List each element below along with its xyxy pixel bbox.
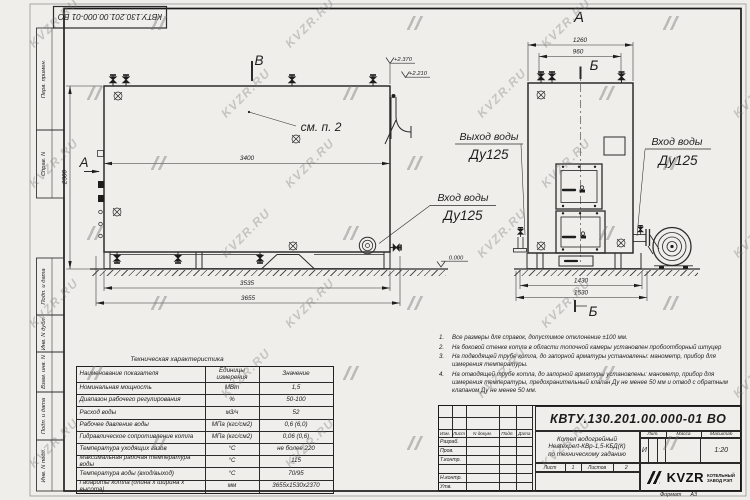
furnace-door-lower [556,211,605,253]
col-podp: Подп. [500,430,517,438]
sheets-label: Листов [582,464,614,471]
watermark-logo-icon [150,16,170,30]
margin-box-perv-primen: Перв. примен. [37,28,65,130]
notes-list: 1.Все размеры для справок, допустимое от… [437,334,738,397]
svg-text:Выход воды: Выход воды [459,131,518,143]
company-name: KVZR [667,470,704,485]
elevation-mark-zero: 0.000 [437,256,468,268]
note-number: 2. [437,344,452,352]
mass-value [666,439,701,462]
inlet-fitting-front [633,226,659,254]
dimension-front-width: 1260 [528,37,633,81]
svg-text:Взам. инв. N: Взам. инв. N [41,354,47,389]
scale-value: 1:20 [701,439,742,462]
drawing-sheet: КВТУ.130.201.00.000-01 ВО Перв. примен. … [0,0,750,500]
watermark-logo-icon [86,226,106,240]
watermark-text: KVZR.RU [26,0,81,51]
signature-rows: Разраб. Пров. Т.контр. Н.контр. Утв. [439,438,535,492]
note-number: 4. [437,371,452,395]
section-mark-b-bottom: Б [575,300,598,319]
margin-column: Перв. примен. Справ. N Подп. и дата Инв.… [37,28,65,491]
valve-icon [289,75,295,86]
product-line3: по техническому заданию [548,451,626,459]
empty-cell [535,472,640,492]
valve-icon [549,72,555,83]
table-row: Номинальная мощностьМВт1,5 [77,383,333,395]
revision-header-row: Изм. Лист N докум. Подп. Дата [439,430,535,438]
lit-header-row: Лит. Масса Масштаб [640,431,743,438]
row-razrab: Разраб. [439,438,467,447]
svg-text:3400: 3400 [240,155,255,162]
watermark-text: KVZR.RU [730,205,750,260]
center-mark-icon [114,92,122,100]
svg-text:Б: Б [590,58,599,73]
lit-value: И [641,439,650,462]
elevation-mark-outlet: +2.210 [402,71,431,78]
top-stamp-number: КВТУ.130.201.00.000-01 ВО [57,12,162,21]
inlet-flange [359,237,375,253]
svg-text:Вход воды: Вход воды [652,136,703,148]
valve-icon [638,226,643,235]
top-stamp: КВТУ.130.201.00.000-01 ВО [54,7,167,29]
company-logo-icon [647,471,664,484]
watermark-text: KVZR.RU [282,275,337,330]
table-row: Рабочее давление водыМПа (кгс/см2)0,6 (6… [77,420,333,432]
watermark-logo-icon [86,86,106,100]
note-text: Все размеры для справок, допустимое откл… [452,334,738,342]
note-item: 3.На подводящей трубе котла, до запорной… [437,353,738,369]
center-mark-icon [292,135,300,143]
watermark-logo-icon [342,226,362,240]
table-row: Гидравлическое сопротивление котлаМПа (к… [77,432,333,444]
ground-hatch-main [92,270,446,277]
furnace-door-upper [556,164,602,209]
lit-value-row: И 1:20 [640,438,743,463]
tech-table-header: Наименование показателя Единицы измерени… [77,367,333,383]
margin-box-inv-podl: Инв. N подл. [37,440,65,491]
support-skid-side [104,252,390,269]
center-mark-icon [537,242,545,250]
product-name: Котел водогрейный Heatexpert-КВр-1,5-КБД… [535,431,640,463]
note-item: 2.На боковой стенке котла в области топо… [437,344,738,352]
svg-text:3655: 3655 [241,295,256,302]
company-subtitle: КОТЕЛЬНЫЙ ЗАВОД РЭП [707,473,735,483]
note-number: 3. [437,353,452,369]
svg-text:1430: 1430 [574,278,589,285]
note-text: На подводящей трубе котла, до запорной а… [452,353,738,369]
col-izm: Изм. [439,430,453,438]
col-data: Дата [517,430,534,438]
watermark-text: KVZR.RU [538,135,593,190]
label-inlet-main: Вход воды Ду125 [379,192,496,244]
valve-icon [123,75,129,86]
drain-valves [114,244,401,263]
center-mark-icon [289,242,297,250]
label-outlet: Выход воды Ду125 [455,131,525,235]
boiler-body-side [104,86,390,252]
section-mark-v: В [252,53,264,81]
watermark-text: KVZR.RU [282,135,337,190]
watermark-logo-icon [150,296,170,310]
svg-text:В: В [254,53,263,68]
note-text: На отводящей трубе котла, до запорной ар… [452,371,738,395]
svg-text:Ду125: Ду125 [657,153,698,168]
svg-text:А: А [78,155,88,170]
see-note-callout: см. п. 2 [248,111,342,134]
ground-hatch-front [514,270,698,277]
watermark-logo-icon [598,226,618,240]
note-text: На боковой стенке котла в области топочн… [452,344,738,352]
valve-icon [110,75,116,86]
watermark-text: KVZR.RU [474,205,529,260]
center-mark-icon [113,208,121,216]
watermark-text: KVZR.RU [538,0,593,51]
table-row: Температура уходящих газов°Сне более 220 [77,444,333,456]
margin-box-podp-data-1: Подп. и дата [37,258,65,315]
watermark-text: KVZR.RU [282,0,337,51]
elevation-mark-top: +2.370 [386,57,415,84]
watermark-text: KVZR.RU [26,275,81,330]
sheets-value: 2 [614,464,640,471]
boiler-body-front [528,83,633,253]
svg-text:Подп. и дата: Подп. и дата [41,268,47,305]
tech-header-unit: Единицы измерения [206,367,260,383]
watermark-logo-icon [406,156,426,170]
top-valves-front [538,72,625,83]
revision-spare-rows [439,406,535,430]
tech-header-value: Значение [260,367,333,383]
watermark-text: KVZR.RU [538,275,593,330]
side-view: 3400 2300 А В [62,53,497,306]
svg-text:Инв. N дубл.: Инв. N дубл. [41,317,47,351]
watermark-text: KVZR.RU [730,65,750,120]
top-safety-valves [110,75,376,86]
door-latch [581,236,587,239]
format-value: А3 [690,492,697,498]
dimension-front-top-width: 960 [539,49,621,82]
outlet-fitting-front [514,228,527,252]
title-block: Изм. Лист N докум. Подп. Дата Разраб. Пр… [438,405,742,491]
label-inlet-front: Вход воды Ду125 [637,136,711,236]
watermark-logo-icon [598,86,618,100]
svg-text:+2.210: +2.210 [409,71,428,77]
note-item: 4.На отводящей трубе котла, до запорной … [437,371,738,395]
dimension-shell-length: 3400 [104,155,390,165]
table-row: Расход водым3/ч52 [77,407,333,419]
watermark-text: KVZR.RU [474,65,529,120]
svg-text:Справ. N: Справ. N [41,151,47,176]
watermark-text: KVZR.RU [218,205,273,260]
watermark-logo-icon [342,366,362,380]
tech-table: Наименование показателя Единицы измерени… [76,366,334,494]
door-latch [580,190,586,193]
center-mark-icon [537,91,545,99]
valve-icon [538,72,544,83]
watermark-text: KVZR.RU [26,135,81,190]
product-line2: Heatexpert-КВр-1,5-КБД(К) [548,443,625,451]
sheet-value: 1 [566,464,582,471]
watermark-logo-icon [406,436,426,450]
svg-text:1260: 1260 [573,37,588,44]
svg-text:Б: Б [589,304,598,319]
row-nkontr: Н.контр. [439,474,467,483]
level-gauge-device [385,94,411,144]
dimension-height: 2300 [62,86,103,269]
svg-text:Ду125: Ду125 [442,208,483,223]
dimension-overall-length: 3655 [96,256,400,306]
watermark-text: KVZR.RU [218,65,273,120]
svg-text:+2.370: +2.370 [394,57,413,63]
svg-text:Перв. примен.: Перв. примен. [41,60,47,99]
svg-text:0.000: 0.000 [449,256,464,262]
valve-icon [114,252,120,263]
format-note: Формат А3 [660,492,697,498]
valve-icon [175,252,181,263]
margin-box-inv-dubl: Инв. N дубл. [37,315,65,352]
watermark-logo-icon [150,156,170,170]
valve-icon [370,75,376,86]
margin-box-podp-data-2: Подп. и дата [37,392,65,440]
support-skid-front [527,253,641,269]
doc-number: КВТУ.130.201.00.000-01 ВО [535,406,743,431]
note-number: 1. [437,334,452,342]
center-marks-side [113,92,300,250]
section-mark-b-top: Б [581,58,599,79]
row-prov: Пров. [439,447,467,456]
watermark-logo-icon [662,156,682,170]
svg-text:Ду125: Ду125 [468,147,509,162]
lit-label: Лит. [641,432,667,437]
valve-icon [618,72,624,83]
format-label: Формат [660,492,681,498]
svg-text:960: 960 [573,49,584,56]
valve-icon [257,252,263,263]
row-tkontr: Т.контр. [439,456,467,465]
view-arrow-a: А [78,155,100,173]
col-doc: N докум. [467,430,500,438]
svg-text:Инв. N подл.: Инв. N подл. [41,449,47,483]
svg-text:2300: 2300 [62,169,69,185]
center-marks-front [537,91,625,250]
product-line1: Котел водогрейный [557,436,617,444]
valve-icon [390,244,401,250]
watermark-logo-icon [406,296,426,310]
watermark-logo-icon [342,86,362,100]
table-row: Максимальная рабочая температура воды°С1… [77,456,333,468]
table-row: Диапазон рабочего регулирования%50-100 [77,395,333,407]
row-utv: Утв. [439,483,467,492]
watermark-logo-icon [406,16,426,30]
sheet-row: Лист 1 Листов 2 [535,463,640,472]
center-mark-icon [617,239,625,247]
scale-label: Масштаб [702,432,743,437]
watermark-text: KVZR.RU [26,415,81,470]
svg-text:3535: 3535 [240,280,255,287]
svg-text:см. п. 2: см. п. 2 [301,120,342,134]
left-wall-fittings [98,151,105,238]
company-cell: KVZR КОТЕЛЬНЫЙ ЗАВОД РЭП [640,463,743,492]
table-row: Температура воды (вход/выход)°С70/95 [77,468,333,480]
ash-drawer [559,256,593,266]
svg-text:Подп. и дата: Подп. и дата [41,397,47,434]
margin-box-sprav: Справ. N [37,130,65,198]
mass-label: Масса [667,432,702,437]
col-list: Лист [453,430,467,438]
note-item: 1.Все размеры для справок, допустимое от… [437,334,738,342]
inspection-hatch [604,137,625,155]
tech-table-title: Техническая характеристика [48,356,306,363]
valve-icon [518,228,523,237]
table-row: Габариты котла (длина х ширина х высота)… [77,481,333,493]
blower-fan [653,228,693,270]
tech-header-name: Наименование показателя [77,367,206,383]
view-label-a-front: А [573,9,584,26]
svg-text:1530: 1530 [574,290,589,297]
svg-text:Вход воды: Вход воды [438,192,489,204]
watermark-logo-icon [662,16,682,30]
watermark-logo-icon [662,296,682,310]
sheet-label: Лист [536,464,566,471]
